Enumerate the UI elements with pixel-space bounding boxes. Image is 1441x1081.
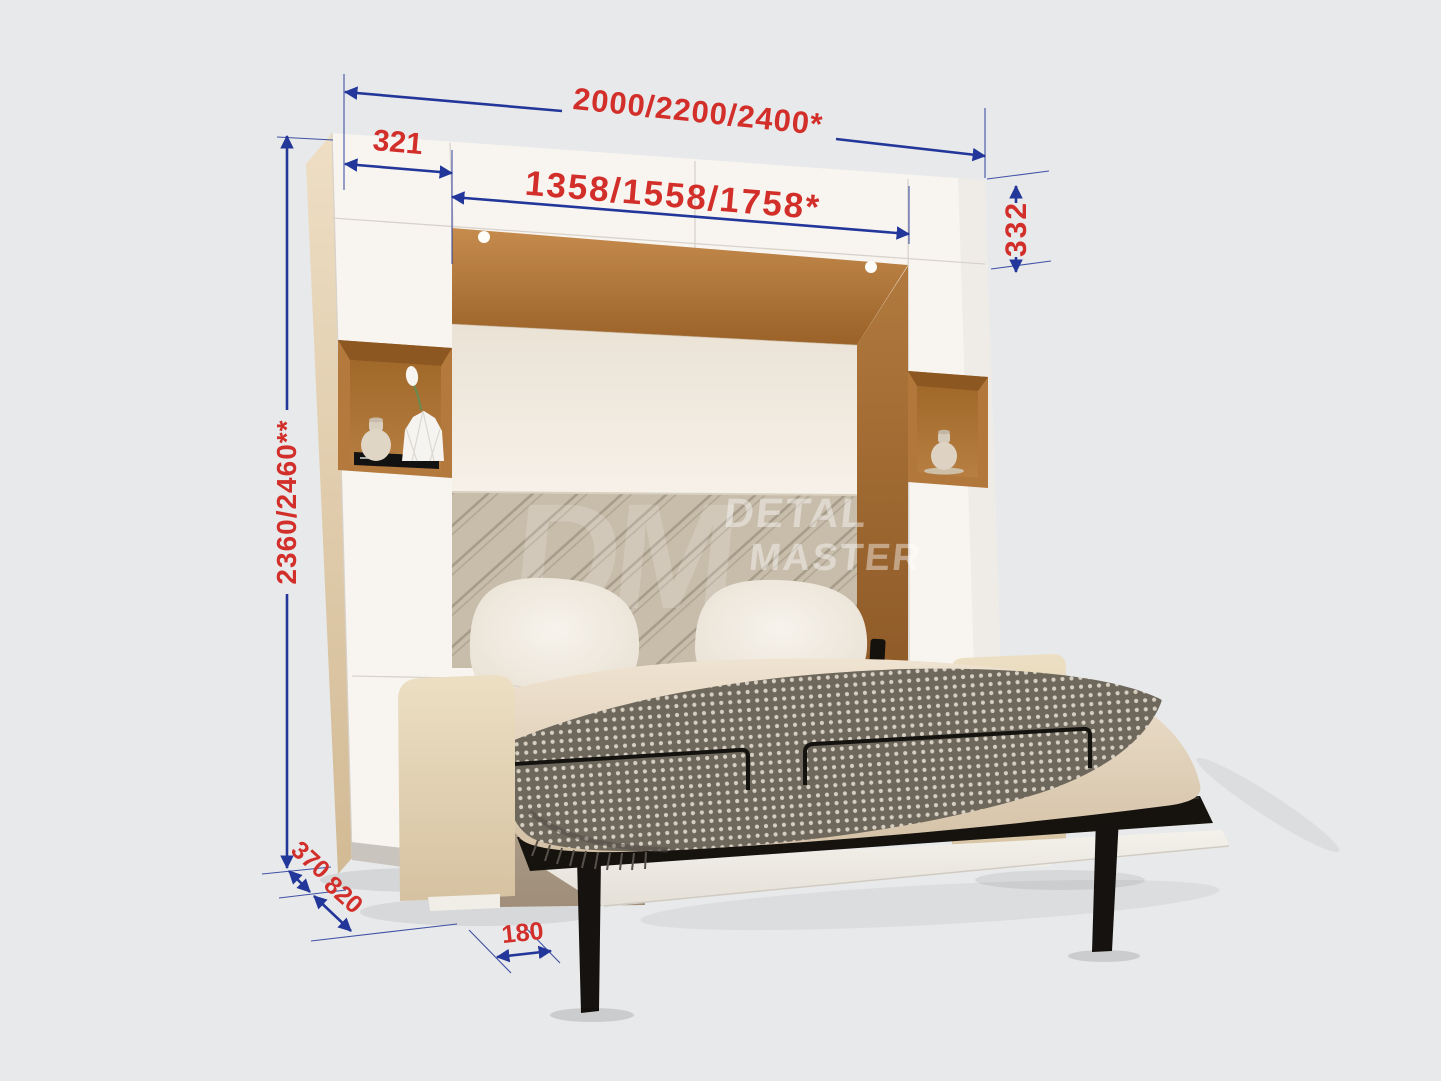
leg-shadow-right [1068,950,1140,962]
dim-leg-offset-label: 180 [500,917,544,949]
dim-top-cabinet-height-label: 332 [1000,201,1033,257]
dim-left-cabinet-width-label: 321 [371,124,424,161]
spot-light-left [478,231,490,243]
left-sofa-arm [398,675,515,911]
back-wall [452,324,857,495]
right-niche [908,371,988,488]
dim-overall-height-label: 2360/2460** [271,419,302,584]
leg-shadow-left [550,1008,634,1022]
watermark-line1: DETAL [722,490,870,536]
spot-light-right [865,261,877,273]
bed-leg-left [577,857,601,1013]
watermark-line2: MASTER [747,537,924,579]
diagram-stage: DM DETAL MASTER [0,0,1441,1081]
scene-svg: DM DETAL MASTER [0,0,1441,1081]
left-niche [338,340,452,478]
